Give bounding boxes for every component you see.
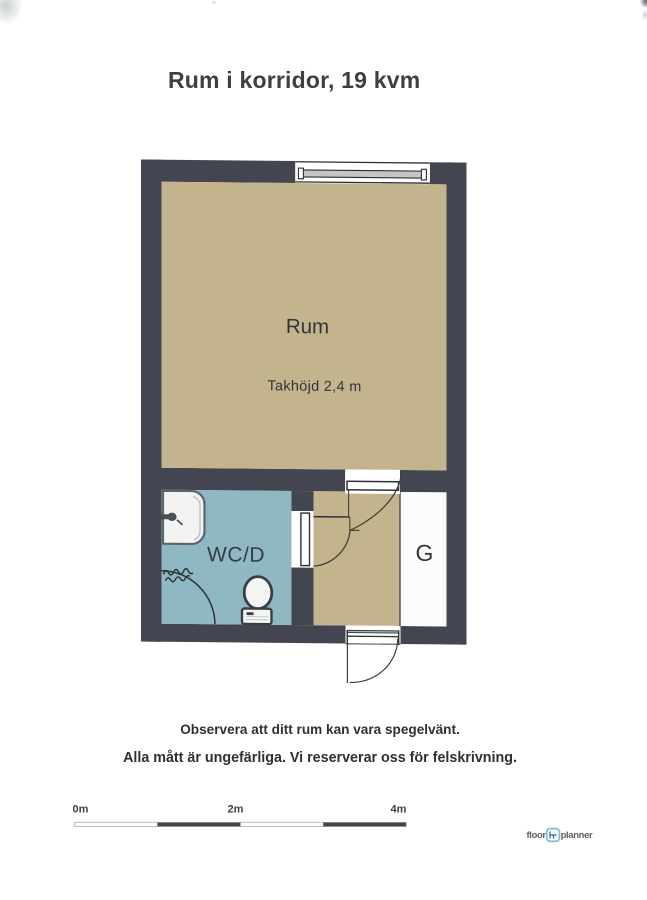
svg-text:G: G (416, 540, 434, 566)
svg-text:Rum: Rum (286, 315, 329, 338)
svg-text:planner: planner (561, 829, 593, 840)
svg-text:WC/D: WC/D (207, 543, 265, 567)
svg-text:2m: 2m (228, 804, 244, 816)
svg-text:floor: floor (526, 829, 546, 840)
svg-text:0m: 0m (73, 804, 89, 816)
svg-text:Takhöjd 2,4 m: Takhöjd 2,4 m (267, 378, 361, 395)
svg-text:4m: 4m (391, 804, 407, 816)
